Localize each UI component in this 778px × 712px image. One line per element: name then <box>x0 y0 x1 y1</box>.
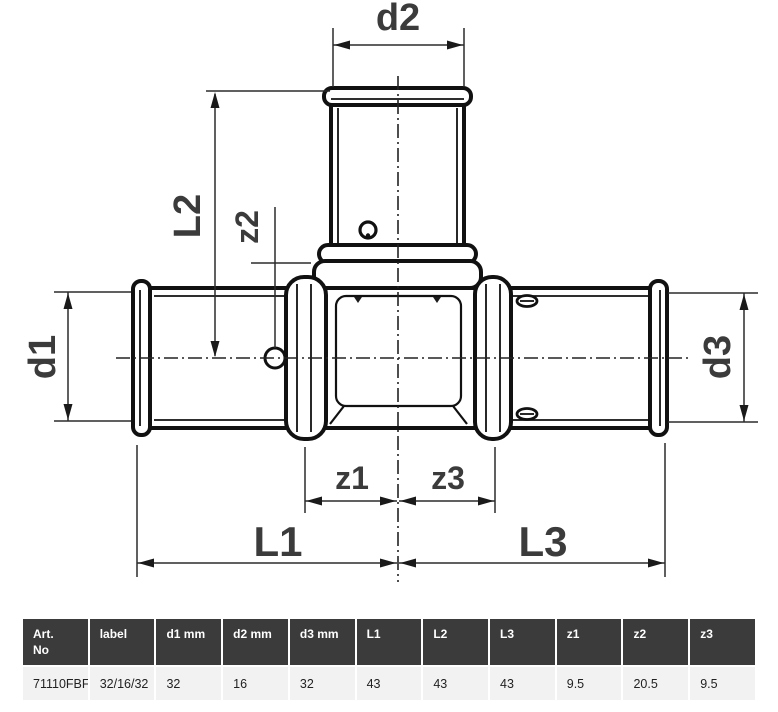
dimension-d2: d2 <box>333 0 464 87</box>
tee-fitting-outline <box>133 88 667 439</box>
col-header-L3: L3 <box>490 619 555 665</box>
dimension-z1: z1 <box>305 447 397 513</box>
label-z1: z1 <box>335 460 369 496</box>
col-header-z3: z3 <box>690 619 755 665</box>
table-header-row: Art. No label d1 mm d2 mm d3 mm L1 L2 L3… <box>23 619 755 665</box>
table-row: 71110FBF 32/16/32 32 16 32 43 43 43 9.5 … <box>23 667 755 700</box>
cell-z2: 20.5 <box>623 667 688 700</box>
cell-L2: 43 <box>423 667 488 700</box>
col-header-label: label <box>90 619 155 665</box>
cell-z3: 9.5 <box>690 667 755 700</box>
cell-L3: 43 <box>490 667 555 700</box>
cell-art-no: 71110FBF <box>23 667 88 700</box>
label-d2: d2 <box>376 0 420 39</box>
col-header-L2: L2 <box>423 619 488 665</box>
cell-label: 32/16/32 <box>90 667 155 700</box>
cell-d3: 32 <box>290 667 355 700</box>
col-header-d1: d1 mm <box>156 619 221 665</box>
col-header-z1: z1 <box>557 619 622 665</box>
cell-L1: 43 <box>357 667 422 700</box>
label-z2: z2 <box>229 210 265 244</box>
spec-table: Art. No label d1 mm d2 mm d3 mm L1 L2 L3… <box>21 617 757 702</box>
col-header-z2: z2 <box>623 619 688 665</box>
col-header-art-no: Art. No <box>23 619 88 665</box>
col-header-d2: d2 mm <box>223 619 288 665</box>
cell-d1: 32 <box>156 667 221 700</box>
label-L1: L1 <box>253 518 302 565</box>
col-header-L1: L1 <box>357 619 422 665</box>
col-header-d3: d3 mm <box>290 619 355 665</box>
label-L2: L2 <box>167 194 209 238</box>
cell-z1: 9.5 <box>557 667 622 700</box>
cell-d2: 16 <box>223 667 288 700</box>
dimension-d1: d1 <box>22 292 131 421</box>
label-d3: d3 <box>697 335 739 379</box>
label-d1: d1 <box>22 335 64 379</box>
label-z3: z3 <box>431 460 465 496</box>
tee-fitting-drawing: d2 L2 z2 d1 d3 z1 <box>0 0 778 610</box>
spec-table-body: 71110FBF 32/16/32 32 16 32 43 43 43 9.5 … <box>23 667 755 700</box>
fitting-diagram: d2 L2 z2 d1 d3 z1 <box>0 0 778 610</box>
spec-table-header: Art. No label d1 mm d2 mm d3 mm L1 L2 L3… <box>23 619 755 665</box>
label-L3: L3 <box>518 518 567 565</box>
dimension-z3: z3 <box>399 447 495 513</box>
